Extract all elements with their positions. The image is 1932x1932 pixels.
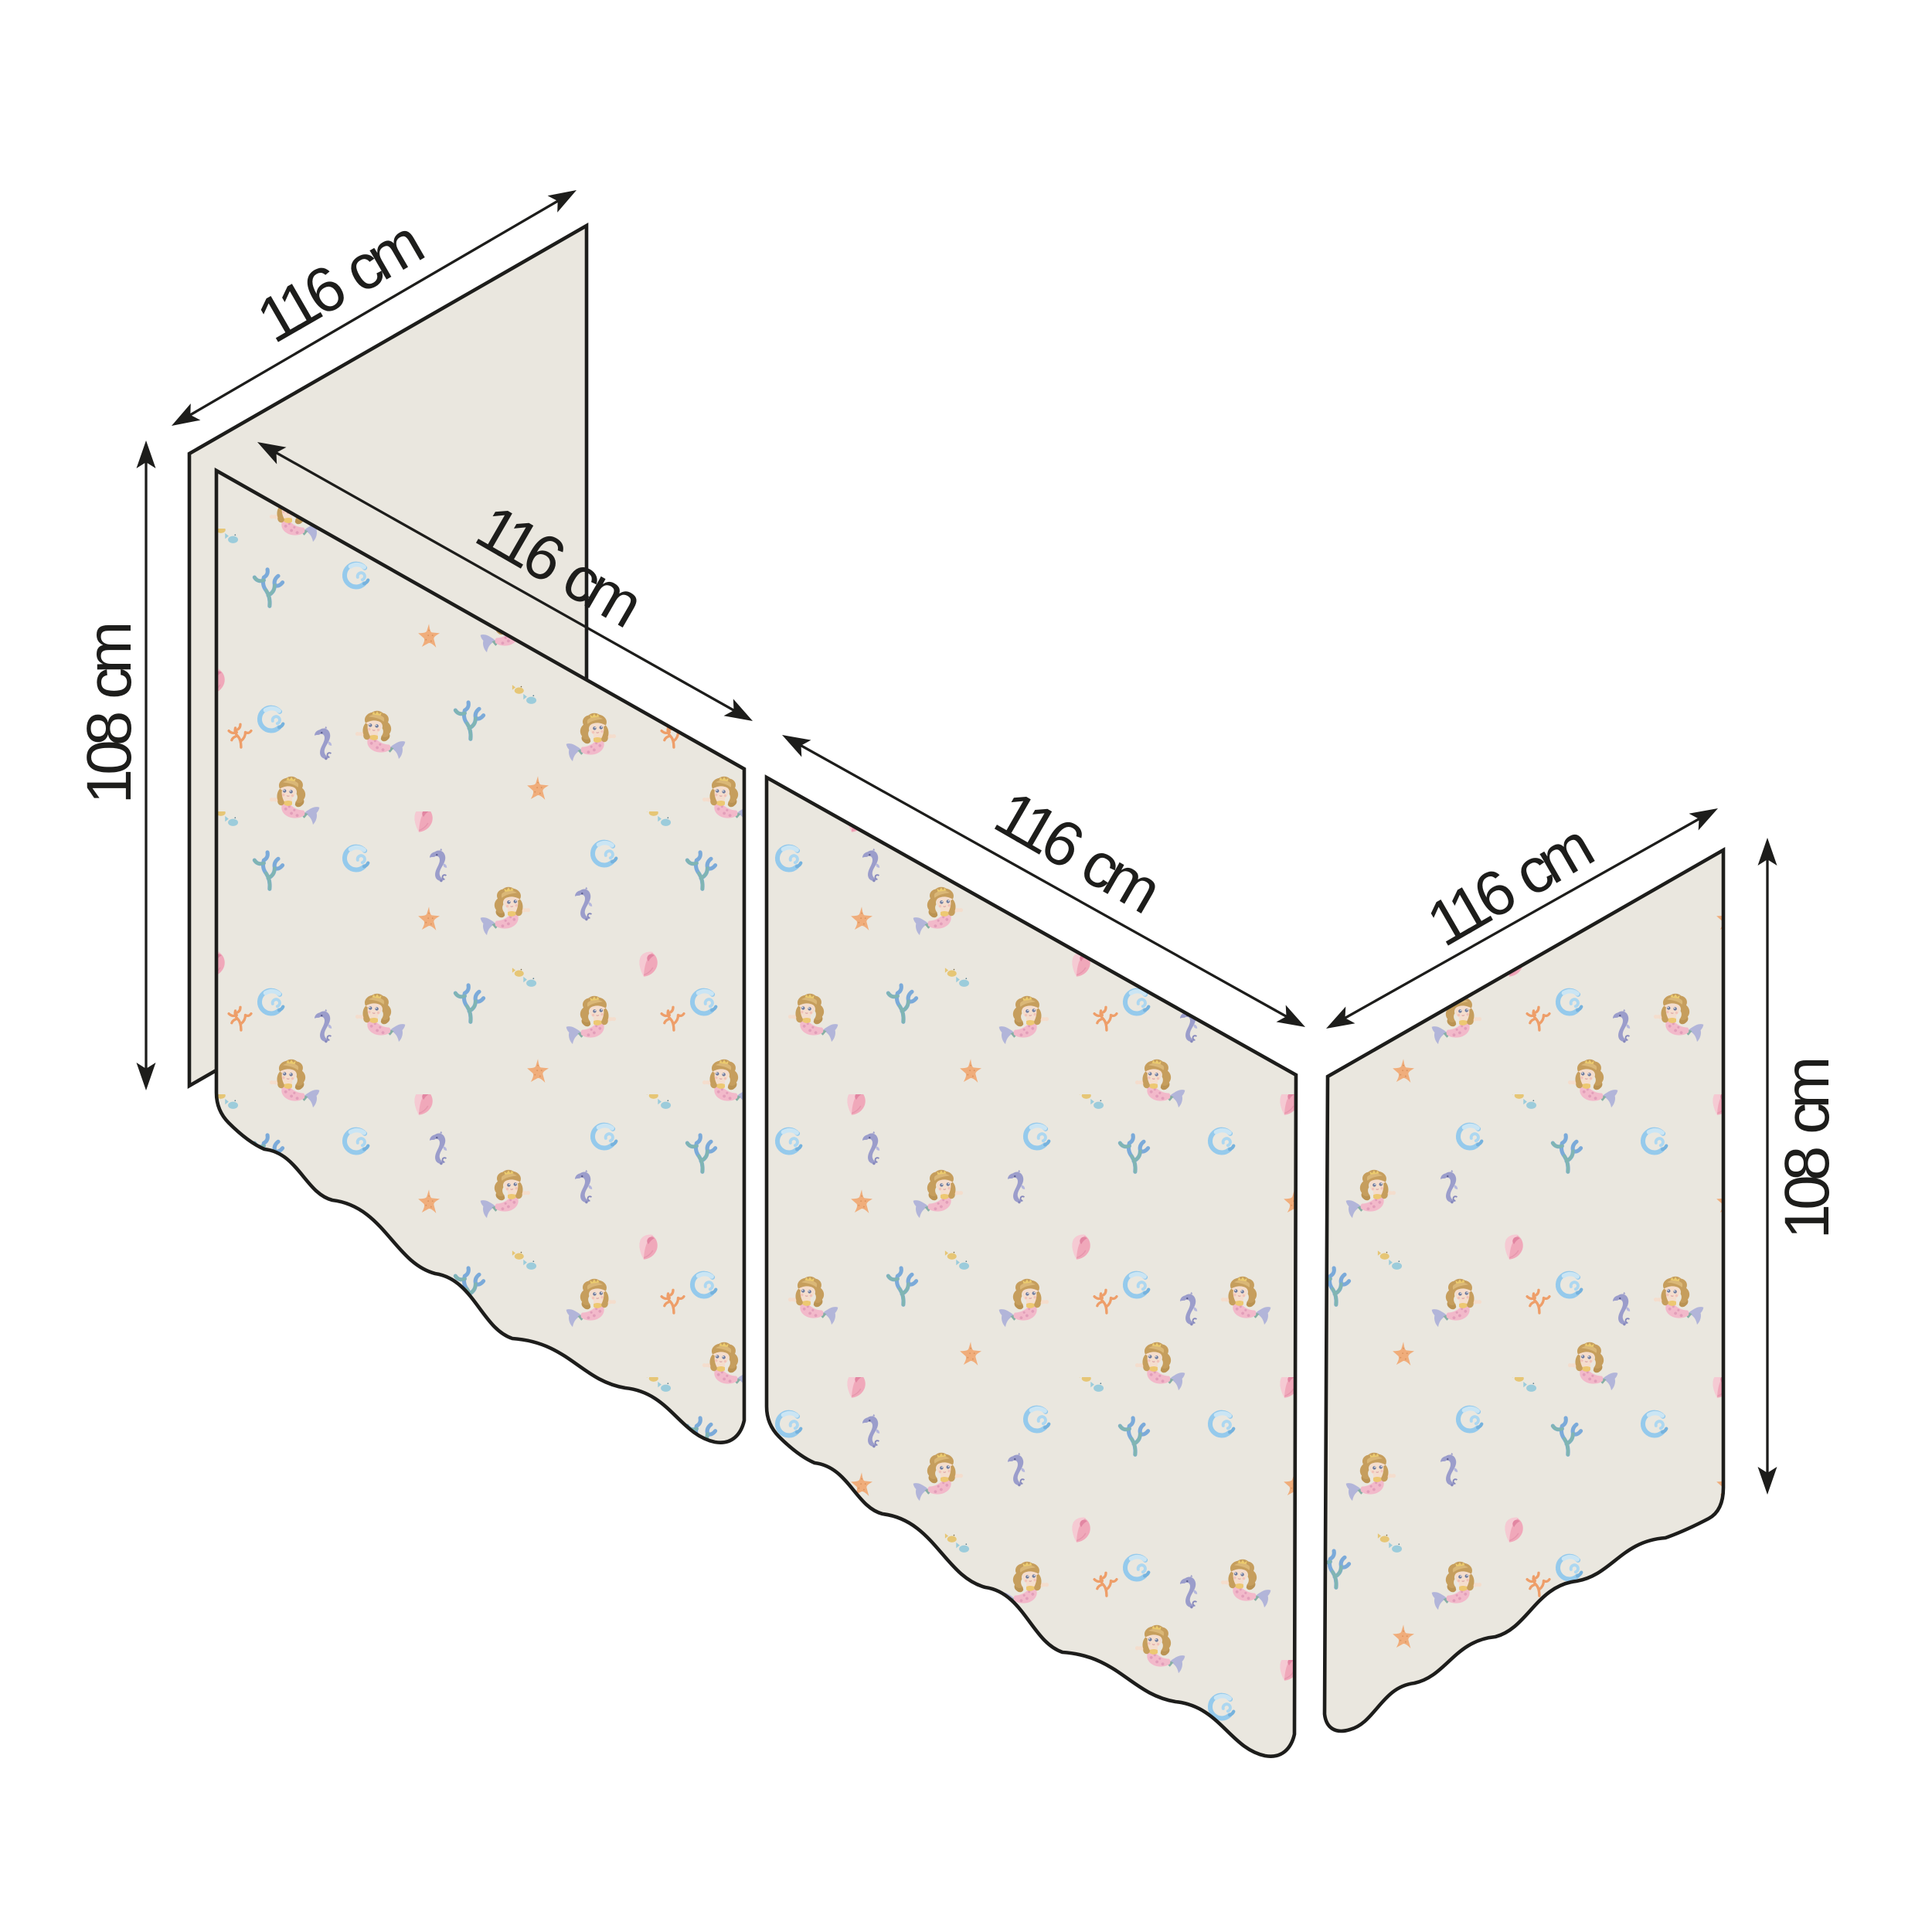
svg-text:108 cm: 108 cm (74, 625, 145, 804)
svg-text:108 cm: 108 cm (1772, 1060, 1842, 1240)
